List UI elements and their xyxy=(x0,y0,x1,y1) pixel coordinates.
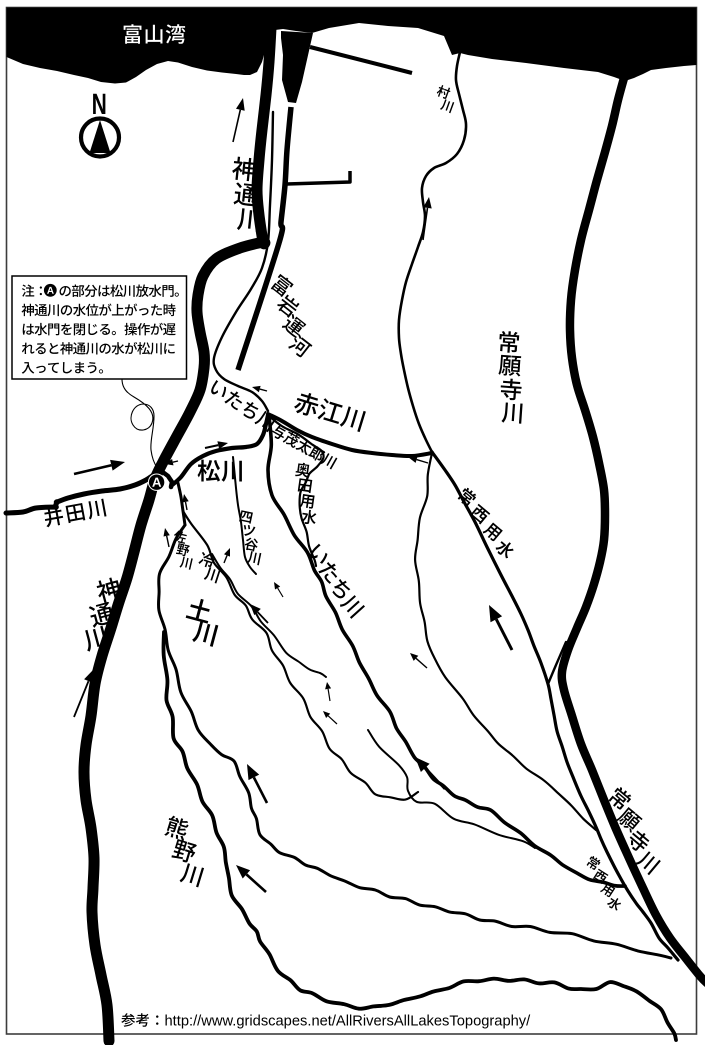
svg-text:http://www.gridscapes.net/AllR: http://www.gridscapes.net/AllRiversAllLa… xyxy=(165,1014,532,1030)
